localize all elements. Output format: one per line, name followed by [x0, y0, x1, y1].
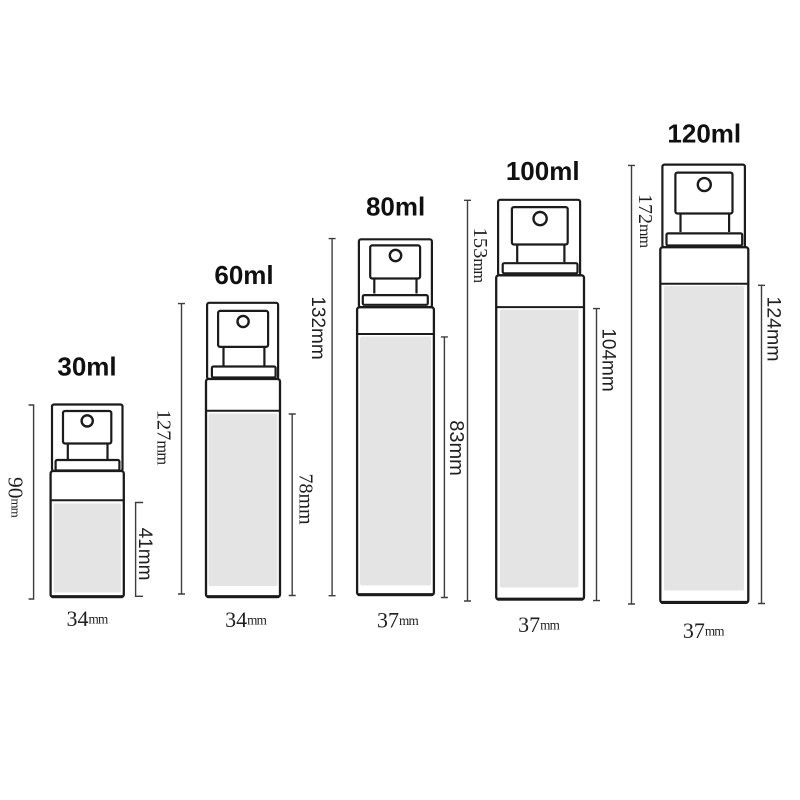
svg-text:30ml: 30ml	[57, 352, 116, 382]
svg-text:60ml: 60ml	[214, 260, 273, 290]
svg-text:83mm: 83mm	[445, 420, 467, 476]
svg-text:41mm: 41mm	[134, 528, 155, 581]
svg-text:132mm: 132mm	[307, 296, 328, 359]
svg-text:127mm: 127mm	[153, 410, 175, 466]
svg-text:78mm: 78mm	[295, 473, 317, 525]
svg-text:104mm: 104mm	[597, 328, 618, 391]
svg-text:80ml: 80ml	[366, 192, 425, 222]
svg-text:120ml: 120ml	[667, 119, 741, 149]
svg-text:124mm: 124mm	[763, 296, 785, 361]
svg-text:153mm: 153mm	[469, 228, 491, 284]
svg-text:100ml: 100ml	[506, 156, 580, 186]
svg-text:172mm: 172mm	[634, 194, 656, 249]
